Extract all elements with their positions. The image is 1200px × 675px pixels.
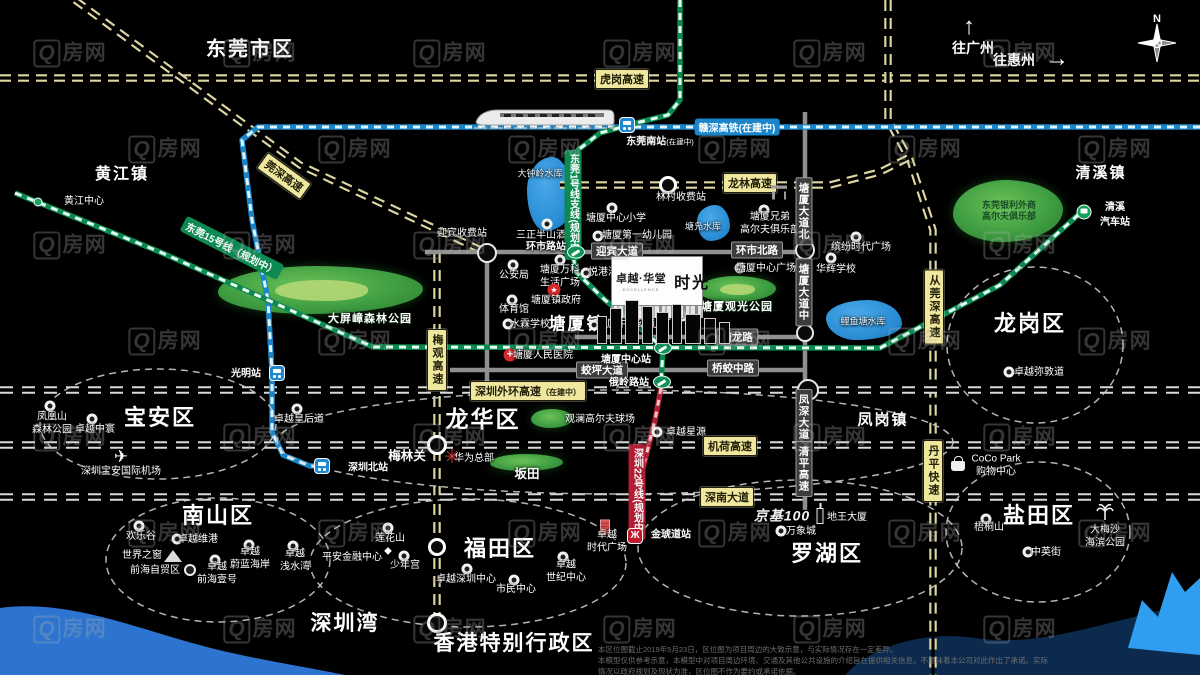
poi-label: 卓越 浅水湾 <box>280 549 310 574</box>
poi-label: 中英街 <box>1031 547 1061 560</box>
watermark-text: 房网 <box>348 330 392 353</box>
watermark-logo: Q <box>508 136 535 164</box>
watermark: Q房网 <box>318 325 391 356</box>
watermark-logo: Q <box>33 40 60 68</box>
watermark-logo: Q <box>603 424 630 452</box>
swirl-icon <box>184 564 196 576</box>
watermark-text: 房网 <box>443 234 487 257</box>
watermark: Q房网 <box>508 133 581 164</box>
poi-label: 卓越深圳中心 <box>436 574 496 587</box>
poi-label: 塘厦镇政府 <box>531 295 581 308</box>
watermark-text: 房网 <box>918 330 962 353</box>
poi-label: 平安金融中心 <box>322 552 382 565</box>
watermark: Q房网 <box>1078 517 1151 548</box>
skyline-building <box>642 306 653 344</box>
watermark-text: 房网 <box>823 426 867 449</box>
watermark-text: 房网 <box>348 522 392 545</box>
disclaimer-line-1: 本区位图截止2019年5月23日，区位图为项目周边的大致示意，与实际情况存在一定… <box>598 645 1048 656</box>
watermark-text: 房网 <box>538 138 582 161</box>
train-green-station-icon <box>653 376 671 389</box>
watermark: Q房网 <box>793 37 866 68</box>
watermark-text: 房网 <box>63 234 107 257</box>
road-label: 环市北路 <box>731 242 783 259</box>
poi-label: 塘厦中心广场 <box>736 263 796 276</box>
region-label: 龙岗区 <box>994 306 1066 338</box>
watermark: Q房网 <box>603 229 676 260</box>
dot-icon <box>45 401 56 412</box>
poi-label: CoCo Park 购物中心 <box>972 454 1021 479</box>
watermark-logo: Q <box>698 520 725 548</box>
dot-icon <box>776 526 787 537</box>
road-label: 桥蛟中路 <box>707 360 759 377</box>
highway-label: 梅观高速 <box>427 329 447 391</box>
poi-label: 黄江中心 <box>64 196 104 209</box>
map-disclaimer: 本区位图截止2019年5月23日，区位图为项目周边的大致示意，与实际情况存在一定… <box>598 645 1048 675</box>
poi-label: 林村收费站 <box>656 192 706 205</box>
watermark: Q房网 <box>603 613 676 644</box>
watermark-text: 房网 <box>443 426 487 449</box>
watermark: Q房网 <box>603 37 676 68</box>
watermark-logo: Q <box>888 520 915 548</box>
watermark: Q房网 <box>318 133 391 164</box>
metro-red-station-icon: Ж <box>627 528 643 544</box>
water-body <box>1128 572 1200 655</box>
poi-label: 体育馆 <box>499 304 529 317</box>
watermark-text: 房网 <box>63 618 107 641</box>
watermark: Q房网 <box>318 517 391 548</box>
station-label: 环市路站 <box>526 238 566 253</box>
region-label: 黄江镇 <box>95 160 149 184</box>
watermark-text: 房网 <box>728 522 772 545</box>
rail-line-label: 深圳22号线(规划中) <box>629 444 646 540</box>
watermark-logo: Q <box>888 328 915 356</box>
region-label: 宝安区 <box>124 400 196 432</box>
watermark: Q房网 <box>983 229 1056 260</box>
dot-icon <box>542 219 553 230</box>
poi-label: 梅林关 <box>388 449 426 465</box>
poi-label: 鲤鱼塘水库 <box>840 316 885 327</box>
watermark-text: 房网 <box>443 42 487 65</box>
watermark-text: 房网 <box>1108 138 1152 161</box>
pyramid-icon <box>164 550 182 562</box>
watermark-text: 房网 <box>1013 234 1057 257</box>
watermark-logo: Q <box>983 616 1010 644</box>
station-label: 深圳北站 <box>348 459 388 474</box>
road-junction-circle <box>796 324 814 342</box>
watermark-text: 房网 <box>253 426 297 449</box>
highway-label: 龙林高速 <box>723 173 777 193</box>
watermark-text: 房网 <box>63 42 107 65</box>
poi-label: 塘厦兄弟 高尔夫俱乐部 <box>740 212 800 237</box>
watermark: Q房网 <box>128 517 201 548</box>
poi-label: 卓越弥敦道 <box>1014 367 1064 380</box>
watermark-logo: Q <box>888 136 915 164</box>
property-name: 卓越·华堂 <box>616 270 666 286</box>
poi-label: 华为总部 <box>454 453 494 466</box>
watermark-logo: Q <box>318 520 345 548</box>
bus-green-station-icon <box>1077 205 1092 220</box>
poi-label: 坂田 <box>514 467 539 483</box>
watermark: Q房网 <box>33 613 106 644</box>
watermark: Q房网 <box>223 229 296 260</box>
watermark: Q房网 <box>983 37 1056 68</box>
watermark: Q房网 <box>33 229 106 260</box>
station-label: 东莞南站(在建中) <box>626 133 694 148</box>
poi-label: 卓越 世纪中心 <box>546 560 586 585</box>
poi-label: 公安局 <box>499 270 529 283</box>
watermark-logo: Q <box>33 424 60 452</box>
watermark-text: 房网 <box>1013 42 1057 65</box>
watermark: Q房网 <box>223 613 296 644</box>
highway-label: 深南大道 <box>700 487 754 507</box>
station-label: 清溪 汽车站 <box>1100 198 1130 228</box>
watermark-logo: Q <box>983 232 1010 260</box>
train-blue-station-icon <box>269 365 285 381</box>
poi-label: 卓越 蔚蓝海岸 <box>230 547 270 572</box>
property-product-name: 时光 <box>674 269 710 293</box>
road-label: 塘厦大道中 <box>796 258 813 326</box>
watermark: Q房网 <box>413 229 486 260</box>
watermark: Q房网 <box>983 613 1056 644</box>
watermark-text: 房网 <box>63 426 107 449</box>
station-label: 塘厦中心站 <box>601 351 651 366</box>
station-label: 金琥道站 <box>651 526 691 541</box>
watermark: Q房网 <box>603 421 676 452</box>
watermark: Q房网 <box>128 325 201 356</box>
skyline-building <box>597 316 607 344</box>
watermark-logo: Q <box>223 40 250 68</box>
watermark-logo: Q <box>508 520 535 548</box>
watermark: Q房网 <box>33 421 106 452</box>
watermark-text: 房网 <box>443 618 487 641</box>
poi-label: 东莞银利外商 高尔夫俱乐部 <box>982 200 1036 223</box>
watermark: Q房网 <box>508 325 581 356</box>
watermark-logo: Q <box>603 616 630 644</box>
watermark: Q房网 <box>793 229 866 260</box>
watermark-logo: Q <box>413 424 440 452</box>
watermark-text: 房网 <box>728 138 772 161</box>
watermark-logo: Q <box>508 328 535 356</box>
watermark: Q房网 <box>698 133 771 164</box>
watermark: Q房网 <box>413 37 486 68</box>
watermark-text: 房网 <box>253 42 297 65</box>
building-icon <box>817 508 824 524</box>
watermark: Q房网 <box>888 325 961 356</box>
highway-label: 虎岗高速 <box>595 69 649 89</box>
station-label: 俄岭路站 <box>609 374 649 389</box>
region-label: 深圳湾 <box>311 607 380 637</box>
watermark-text: 房网 <box>538 330 582 353</box>
rail-line-label: 东莞1号线支线(规划中) <box>565 150 582 260</box>
watermark: Q房网 <box>223 37 296 68</box>
compass-icon: N <box>1132 10 1182 62</box>
park-label: 塘厦观光公园 <box>701 298 773 314</box>
watermark-logo: Q <box>33 616 60 644</box>
watermark-text: 房网 <box>158 522 202 545</box>
poi-label: 深圳宝安国际机场 <box>81 466 161 479</box>
region-label: 清溪镇 <box>1075 162 1126 183</box>
watermark-logo: Q <box>128 520 155 548</box>
watermark-text: 房网 <box>158 138 202 161</box>
poi-label: 华辉学校 <box>816 264 856 277</box>
watermark: Q房网 <box>698 325 771 356</box>
watermark-logo: Q <box>603 40 630 68</box>
watermark: Q房网 <box>1078 325 1151 356</box>
watermark-text: 房网 <box>823 42 867 65</box>
disclaimer-line-2: 本模型仅供参考示意，本模型中对项目周边环境、交通及其他公共设施的介绍旨在提供相关… <box>598 656 1048 675</box>
watermark: Q房网 <box>793 421 866 452</box>
watermark-logo: Q <box>698 136 725 164</box>
poi-label: 塘凫水库 <box>685 221 721 232</box>
watermark-logo: Q <box>223 232 250 260</box>
watermark: Q房网 <box>888 133 961 164</box>
poi-label: 少年宫 <box>390 560 420 573</box>
dot-icon <box>1004 367 1015 378</box>
watermark-logo: Q <box>223 616 250 644</box>
watermark-logo: Q <box>793 616 820 644</box>
road-rail-cyan <box>242 127 1200 466</box>
poi-label: 梧桐山 <box>974 522 1004 535</box>
poi-label: 万象城 <box>786 526 816 539</box>
watermark-logo: Q <box>793 40 820 68</box>
train-green-station-icon <box>567 246 585 259</box>
toll-station-circle <box>428 538 446 556</box>
skyline-building <box>625 300 639 344</box>
north-direction-arrow-icon: ↑ <box>963 17 975 37</box>
skyline-building <box>672 304 682 344</box>
watermark-text: 房网 <box>633 618 677 641</box>
poi-label: 塘厦中心小学 <box>586 213 646 226</box>
watermark: Q房网 <box>223 421 296 452</box>
watermark-text: 房网 <box>823 234 867 257</box>
watermark-logo: Q <box>128 136 155 164</box>
watermark-logo: Q <box>318 328 345 356</box>
watermark: Q房网 <box>888 517 961 548</box>
watermark-logo: Q <box>698 328 725 356</box>
watermark-logo: Q <box>1078 520 1105 548</box>
highway-label: 深圳外环高速（在建中） <box>470 381 586 401</box>
poi-label: 市民中心 <box>496 584 536 597</box>
poi-label: 塘厦万科 生活广场 <box>540 265 580 290</box>
watermark: Q房网 <box>983 421 1056 452</box>
highway-label: 丹平快速 <box>923 440 943 502</box>
watermark-logo: Q <box>1078 328 1105 356</box>
watermark-text: 房网 <box>633 426 677 449</box>
train-blue-station-icon <box>619 117 635 133</box>
highway-label-status: （在建中） <box>541 388 581 397</box>
region-label: 盐田区 <box>1003 498 1075 530</box>
location-map: 东莞市区黄江镇清溪镇塘厦镇凤岗镇龙岗区宝安区龙华区南山区福田区罗湖区盐田区深圳湾… <box>0 0 1200 675</box>
watermark: Q房网 <box>413 421 486 452</box>
watermark-text: 房网 <box>348 138 392 161</box>
watermark-text: 房网 <box>1108 522 1152 545</box>
poi-label: 地王大厦 <box>827 512 867 525</box>
hsr-train-icon <box>470 104 620 132</box>
watermark-text: 房网 <box>633 234 677 257</box>
station-label: 光明站 <box>231 365 261 380</box>
watermark-text: 房网 <box>918 522 962 545</box>
watermark-logo: Q <box>413 40 440 68</box>
plane-icon: ✈ <box>114 447 128 467</box>
watermark-logo: Q <box>223 424 250 452</box>
region-label: 罗湖区 <box>791 536 863 568</box>
watermark-text: 房网 <box>1013 618 1057 641</box>
highway-label: 机荷高速 <box>703 436 757 456</box>
watermark: Q房网 <box>128 133 201 164</box>
skyline-building <box>656 312 669 344</box>
bag-icon <box>951 461 965 471</box>
toll-gate-icon <box>771 186 787 197</box>
road-rail-cyan <box>242 127 1200 466</box>
watermark-text: 房网 <box>538 522 582 545</box>
watermark: Q房网 <box>793 613 866 644</box>
poi-label: 世界之窗 <box>122 550 162 563</box>
watermark-text: 房网 <box>1013 426 1057 449</box>
property-name-en: EXCELLENCE <box>616 287 666 292</box>
poi-label: 大钟岭水库 <box>517 168 562 179</box>
green-dot-icon <box>34 198 43 207</box>
train-blue-station-icon <box>314 458 330 474</box>
watermark-logo: Q <box>413 616 440 644</box>
watermark-text: 房网 <box>253 618 297 641</box>
watermark-logo: Q <box>413 232 440 260</box>
watermark: Q房网 <box>698 517 771 548</box>
compass-n-label: N <box>1153 13 1161 25</box>
watermark-text: 房网 <box>823 618 867 641</box>
watermark-logo: Q <box>33 232 60 260</box>
watermark-text: 房网 <box>1108 330 1152 353</box>
watermark-logo: Q <box>603 232 630 260</box>
watermark: Q房网 <box>1078 133 1151 164</box>
watermark-logo: Q <box>983 40 1010 68</box>
watermark-text: 房网 <box>253 234 297 257</box>
poi-label: 前海自贸区 <box>130 565 180 578</box>
watermark-logo: Q <box>318 136 345 164</box>
watermark-text: 房网 <box>918 138 962 161</box>
poi-label: 卓越 时代广场 <box>587 530 627 555</box>
watermark: Q房网 <box>33 37 106 68</box>
watermark-text: 房网 <box>158 330 202 353</box>
watermark-logo: Q <box>1078 136 1105 164</box>
skyline-building <box>610 308 622 344</box>
watermark-logo: Q <box>983 424 1010 452</box>
station-status: (在建中) <box>666 138 694 147</box>
watermark-logo: Q <box>128 328 155 356</box>
watermark: Q房网 <box>508 517 581 548</box>
watermark: Q房网 <box>413 613 486 644</box>
watermark-logo: Q <box>793 424 820 452</box>
property-logo-box: 卓越·华堂 EXCELLENCE 时光 <box>611 256 703 306</box>
watermark-logo: Q <box>793 232 820 260</box>
watermark-text: 房网 <box>633 42 677 65</box>
watermark-text: 房网 <box>728 330 772 353</box>
